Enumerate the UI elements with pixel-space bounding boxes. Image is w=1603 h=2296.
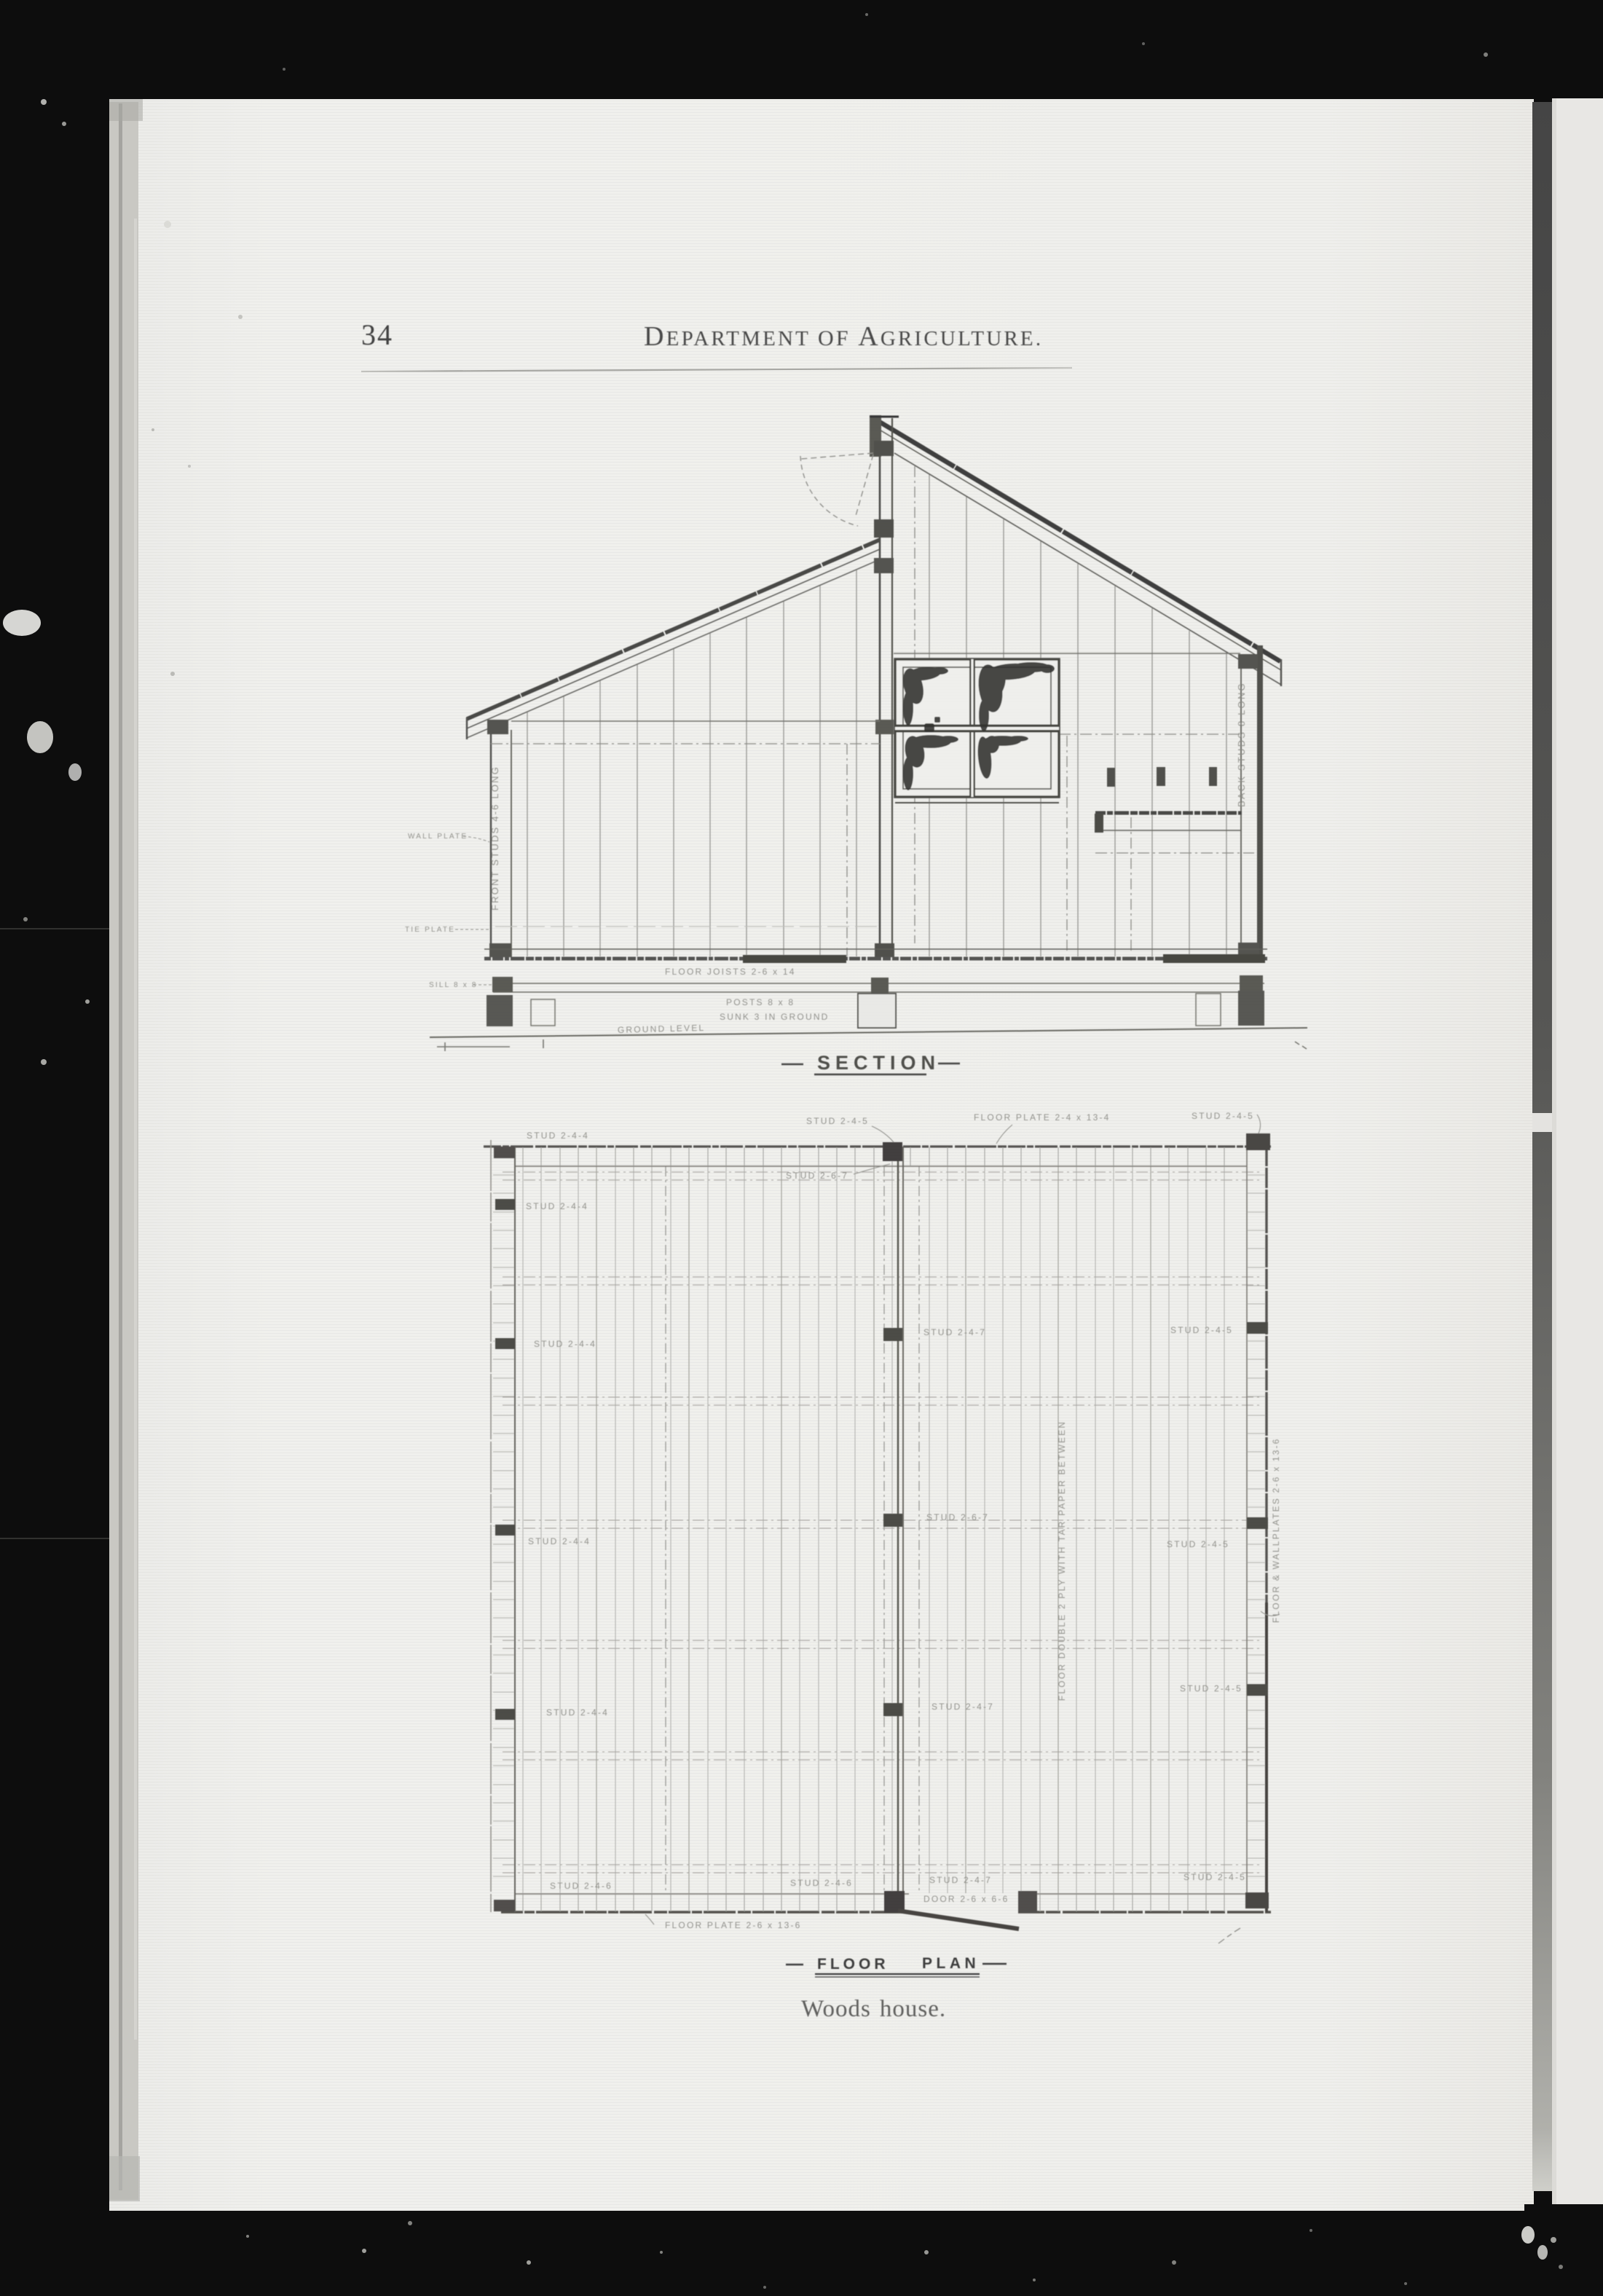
svg-text:STUD 2-4-4: STUD 2-4-4 — [526, 1201, 588, 1211]
svg-text:STUD 2-6-7: STUD 2-6-7 — [786, 1171, 848, 1181]
svg-text:DOOR 2-6 x 6-6: DOOR 2-6 x 6-6 — [923, 1894, 1009, 1904]
svg-text:STUD 2-4-7: STUD 2-4-7 — [923, 1327, 986, 1337]
svg-text:STUD 2-4-6: STUD 2-4-6 — [550, 1881, 613, 1891]
svg-text:STUD 2-4-5: STUD 2-4-5 — [1170, 1325, 1233, 1335]
svg-text:PLAN: PLAN — [922, 1955, 980, 1972]
svg-text:STUD 2-4-5: STUD 2-4-5 — [1183, 1872, 1246, 1882]
svg-text:FLOOR JOISTS 2-6 x 14: FLOOR JOISTS 2-6 x 14 — [665, 967, 796, 977]
svg-text:STUD 2-4-4: STUD 2-4-4 — [527, 1131, 589, 1141]
svg-text:POSTS 8 x 8: POSTS 8 x 8 — [726, 997, 795, 1007]
svg-text:STUD 2-4-7: STUD 2-4-7 — [929, 1875, 992, 1885]
svg-text:STUD 2-4-5: STUD 2-4-5 — [1167, 1539, 1229, 1549]
svg-text:SECTION: SECTION — [817, 1052, 940, 1074]
svg-text:FLOOR: FLOOR — [817, 1956, 889, 1973]
svg-text:SILL 8 x 8: SILL 8 x 8 — [429, 981, 478, 989]
svg-text:STUD 2-4-6: STUD 2-4-6 — [790, 1878, 853, 1888]
svg-text:TIE PLATE: TIE PLATE — [405, 926, 455, 934]
svg-text:FLOOR & WALLPLATES 2-6 x 13-6: FLOOR & WALLPLATES 2-6 x 13-6 — [1271, 1437, 1281, 1623]
svg-text:WALL PLATE: WALL PLATE — [408, 833, 468, 841]
svg-text:FLOOR PLATE 2-6 x 13-6: FLOOR PLATE 2-6 x 13-6 — [665, 1920, 802, 1930]
svg-text:STUD 2-6-7: STUD 2-6-7 — [926, 1512, 989, 1522]
svg-text:FLOOR PLATE 2-4 x 13-4: FLOOR PLATE 2-4 x 13-4 — [974, 1112, 1111, 1123]
svg-text:BACK STUDS 8 LONG: BACK STUDS 8 LONG — [1236, 682, 1247, 807]
svg-text:34: 34 — [361, 318, 393, 351]
svg-text:STUD 2-4-4: STUD 2-4-4 — [534, 1339, 596, 1349]
svg-text:SUNK 3 IN GROUND: SUNK 3 IN GROUND — [720, 1012, 830, 1022]
svg-text:FLOOR DOUBLE 2 PLY WITH TAR PA: FLOOR DOUBLE 2 PLY WITH TAR PAPER BETWEE… — [1057, 1420, 1067, 1701]
svg-text:STUD 2-4-5: STUD 2-4-5 — [1192, 1111, 1254, 1121]
svg-text:STUD 2-4-7: STUD 2-4-7 — [932, 1702, 994, 1712]
svg-text:FRONT STUDS 4-6 LONG: FRONT STUDS 4-6 LONG — [489, 766, 500, 911]
svg-text:STUD 2-4-4: STUD 2-4-4 — [546, 1707, 609, 1718]
svg-text:STUD 2-4-5: STUD 2-4-5 — [806, 1116, 869, 1126]
svg-text:STUD 2-4-4: STUD 2-4-4 — [528, 1536, 591, 1546]
svg-text:STUD 2-4-5: STUD 2-4-5 — [1180, 1683, 1242, 1694]
